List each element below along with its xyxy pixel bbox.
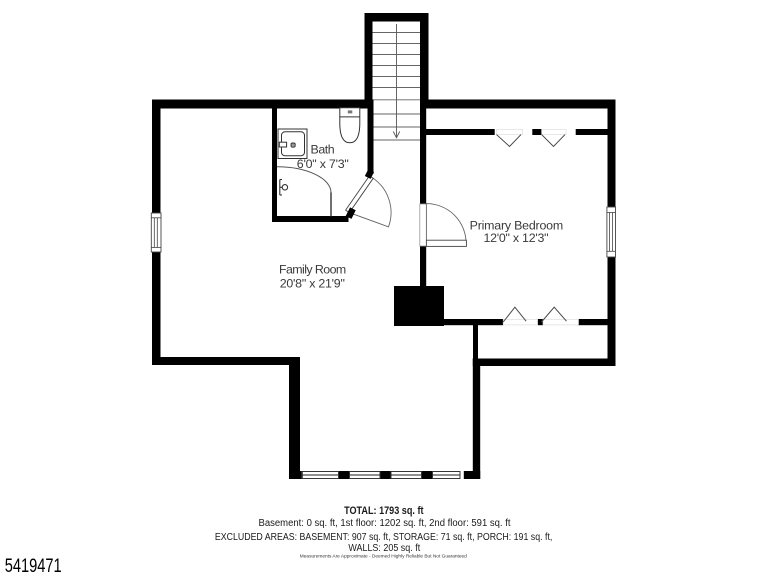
svg-text:6'0" x 7'3": 6'0" x 7'3" — [297, 157, 349, 171]
svg-text:Measurements Are Approximate -: Measurements Are Approximate - Deemed Hi… — [300, 553, 468, 558]
svg-text:EXCLUDED AREAS: BASEMENT: 907: EXCLUDED AREAS: BASEMENT: 907 sq. ft, ST… — [215, 532, 553, 543]
svg-text:12'0" x 12'3": 12'0" x 12'3" — [483, 231, 548, 245]
svg-text:Basement: 0 sq. ft, 1st floor:: Basement: 0 sq. ft, 1st floor: 1202 sq. … — [259, 518, 511, 529]
svg-text:Family Room: Family Room — [279, 262, 346, 276]
svg-text:TOTAL: 1793 sq. ft: TOTAL: 1793 sq. ft — [344, 505, 424, 517]
svg-text:WALLS: 205 sq. ft: WALLS: 205 sq. ft — [348, 543, 420, 554]
svg-text:Bath: Bath — [311, 143, 335, 157]
svg-text:20'8" x 21'9": 20'8" x 21'9" — [280, 277, 345, 291]
svg-text:5419471: 5419471 — [5, 556, 62, 576]
